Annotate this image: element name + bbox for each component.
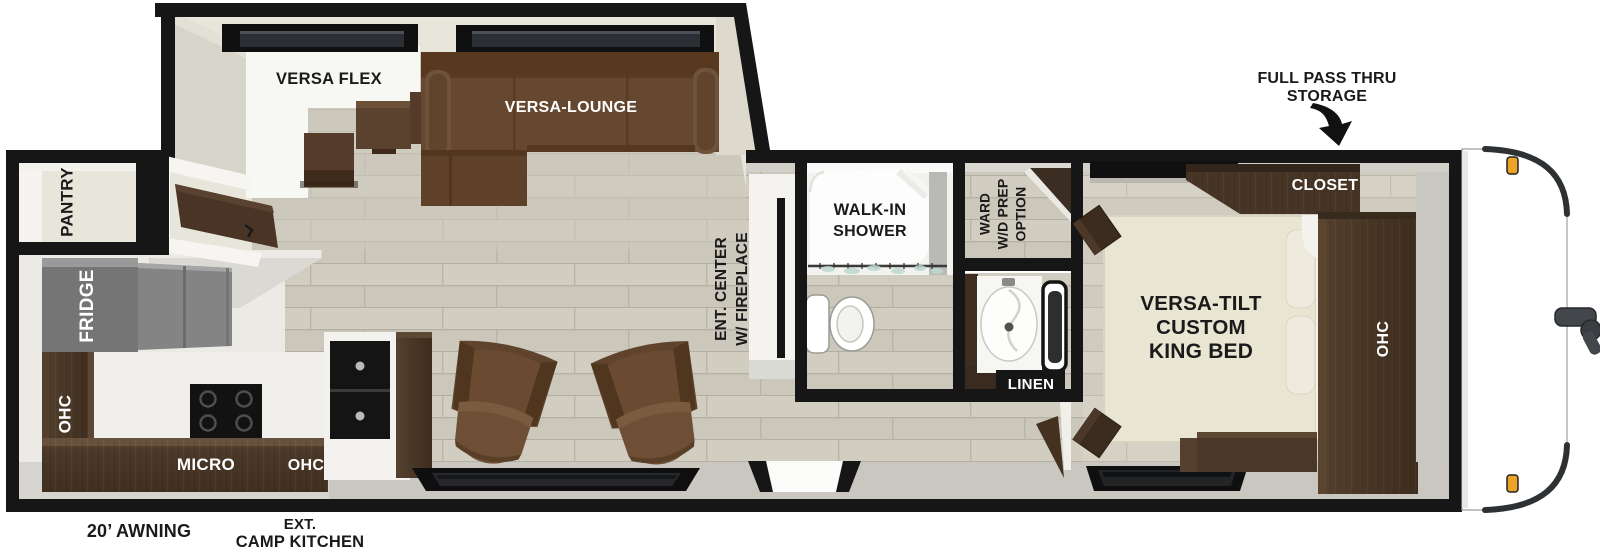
svg-text:STORAGE: STORAGE xyxy=(1287,88,1367,105)
svg-text:KING BED: KING BED xyxy=(1149,340,1253,363)
svg-text:OHC: OHC xyxy=(1375,321,1392,358)
svg-text:FRIDGE: FRIDGE xyxy=(77,269,98,343)
svg-text:WARD: WARD xyxy=(978,193,993,235)
svg-text:SHOWER: SHOWER xyxy=(833,223,907,240)
svg-text:VERSA-LOUNGE: VERSA-LOUNGE xyxy=(505,99,638,116)
svg-text:CAMP KITCHEN: CAMP KITCHEN xyxy=(236,533,365,549)
svg-text:CUSTOM: CUSTOM xyxy=(1156,316,1246,339)
svg-text:W/D PREP: W/D PREP xyxy=(995,179,1011,250)
svg-text:WALK-IN: WALK-IN xyxy=(834,201,907,219)
svg-text:PANTRY: PANTRY xyxy=(57,167,76,237)
svg-text:VERSA-TILT: VERSA-TILT xyxy=(1140,292,1261,315)
svg-text:MICRO: MICRO xyxy=(177,455,235,474)
svg-text:VERSA FLEX: VERSA FLEX xyxy=(276,70,382,88)
svg-text:OHC: OHC xyxy=(55,395,74,434)
svg-text:CLOSET: CLOSET xyxy=(1292,177,1359,194)
svg-text:ENT. CENTER: ENT. CENTER xyxy=(713,237,730,341)
svg-text:OPTION: OPTION xyxy=(1013,187,1029,242)
svg-text:OHC: OHC xyxy=(288,457,325,474)
svg-text:W/ FIREPLACE: W/ FIREPLACE xyxy=(734,232,751,345)
svg-text:EXT.: EXT. xyxy=(284,516,316,533)
svg-text:20’ AWNING: 20’ AWNING xyxy=(87,521,191,541)
svg-text:FULL PASS THRU: FULL PASS THRU xyxy=(1257,70,1396,87)
